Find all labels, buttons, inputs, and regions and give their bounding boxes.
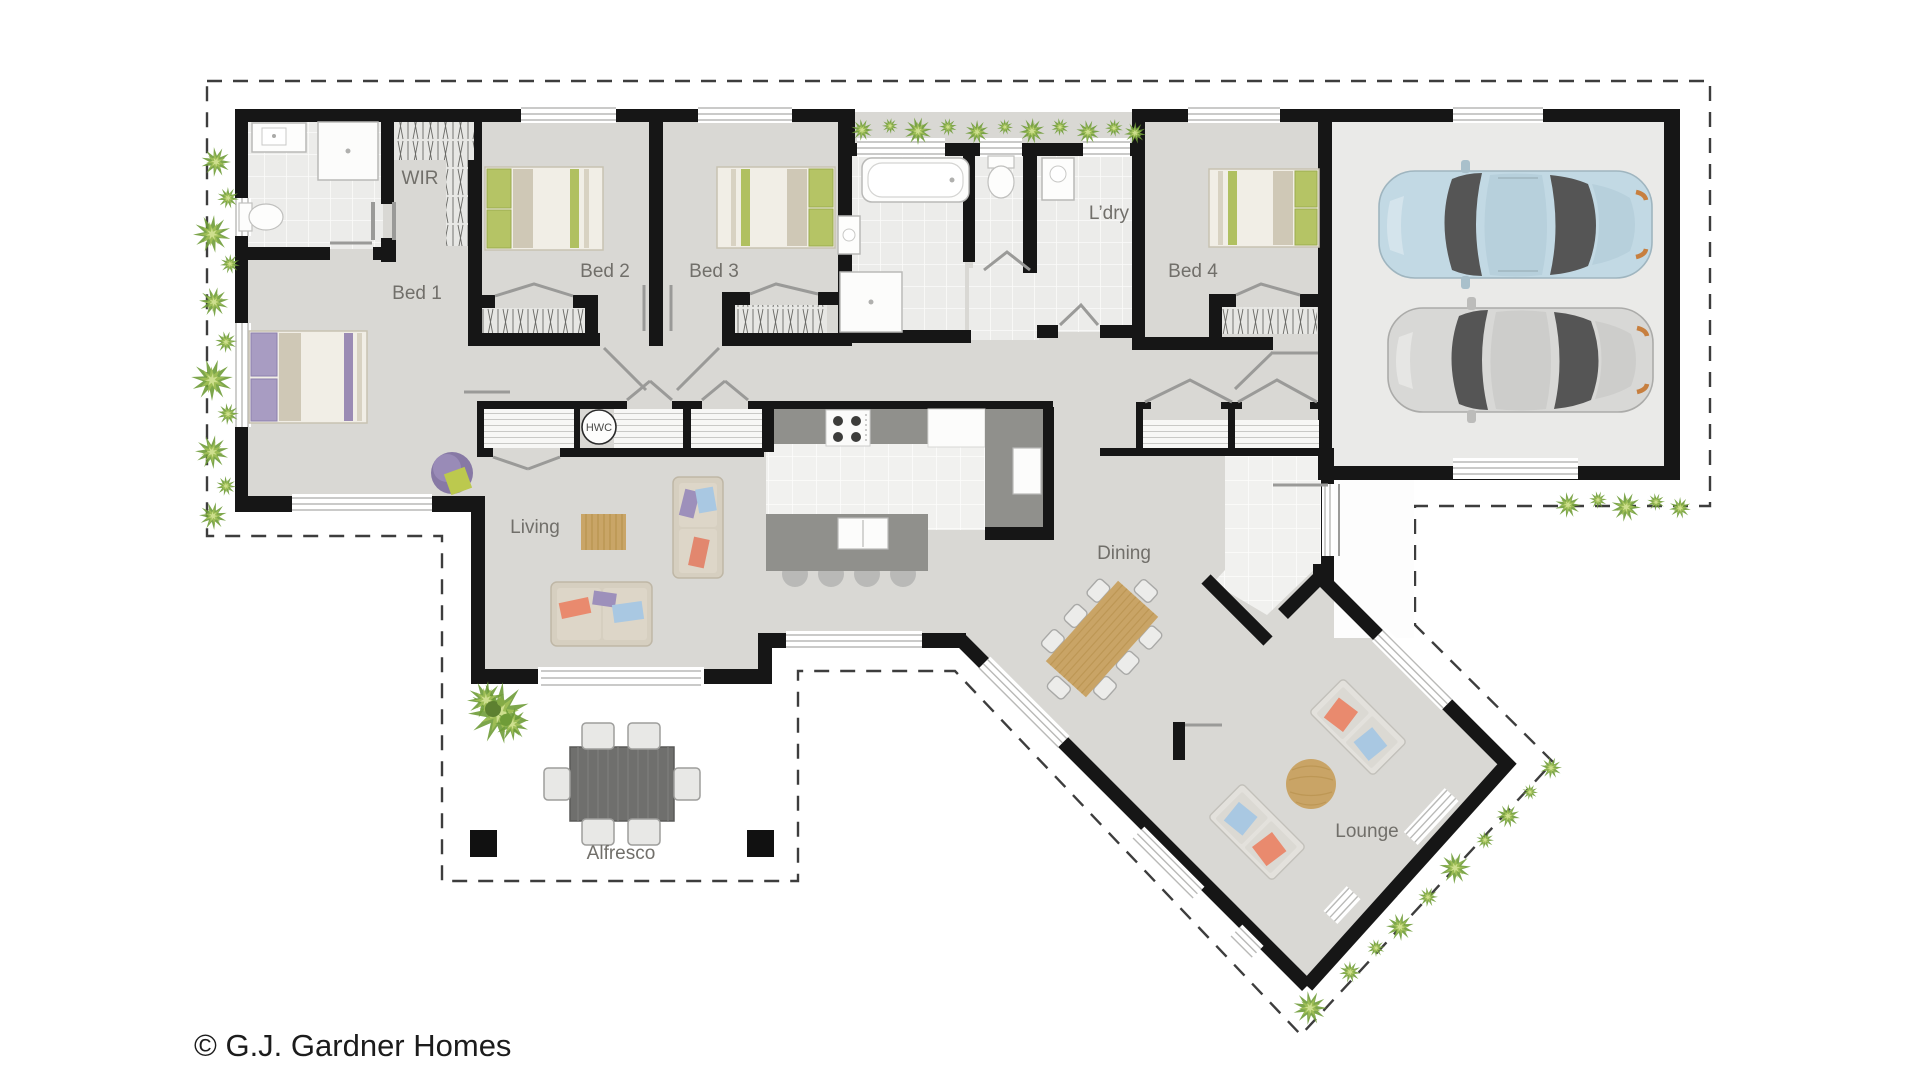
svg-text:Lounge: Lounge	[1335, 821, 1398, 842]
svg-text:Living: Living	[510, 517, 560, 538]
svg-text:© G.J. Gardner Homes: © G.J. Gardner Homes	[194, 1028, 511, 1063]
svg-text:Dining: Dining	[1097, 543, 1151, 564]
svg-text:L’dry: L’dry	[1089, 203, 1130, 224]
svg-text:HWC: HWC	[586, 422, 612, 434]
svg-text:Bed 1: Bed 1	[392, 283, 442, 304]
svg-text:Bed 3: Bed 3	[689, 261, 739, 282]
svg-text:Bed 2: Bed 2	[580, 261, 630, 282]
svg-text:Alfresco: Alfresco	[587, 843, 656, 864]
svg-text:Bed 4: Bed 4	[1168, 261, 1218, 282]
svg-text:WIR: WIR	[402, 168, 439, 189]
